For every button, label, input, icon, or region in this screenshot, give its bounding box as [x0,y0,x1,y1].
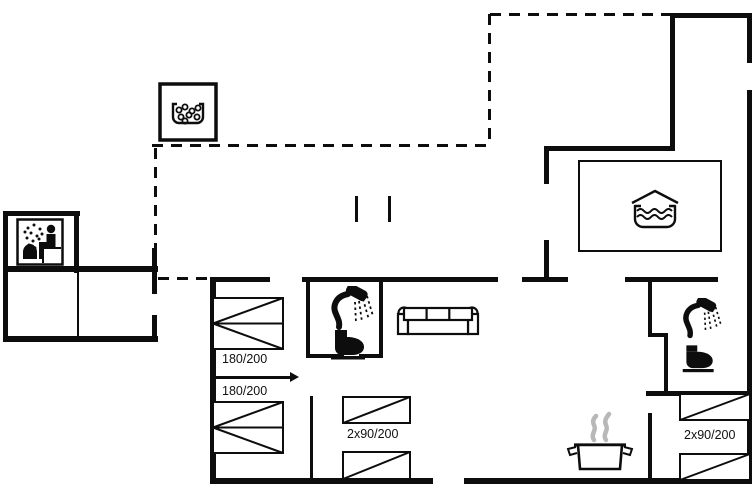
wall-segment [670,13,752,18]
bed-size-label: 2x90/200 [347,427,398,441]
bed-size-label: 2x90/200 [684,428,735,442]
double-bed [212,401,284,454]
bunk-bed-upper [679,393,751,421]
bunk-bed-upper [342,396,411,424]
wall-segment [3,266,158,272]
wall-segment [302,277,498,282]
terrace-boundary-south [152,144,490,147]
terrace-boundary-left [154,148,157,248]
wall-segment [152,315,157,342]
wall-segment [625,277,718,282]
bunk-bed-lower [342,451,411,480]
wall-segment [747,13,752,63]
door-mark [388,196,391,222]
bed-size-label: 180/200 [222,384,267,398]
terrace-boundary-north [490,13,672,16]
shower-icon [680,298,722,340]
double-bed [212,297,284,350]
bathtub-icon [627,186,683,232]
wall-segment [310,396,313,481]
wall-segment [379,281,383,358]
wall-segment [747,90,752,480]
bed-size-label: 180/200 [222,352,267,366]
wall-segment [664,333,668,395]
wall-segment [212,376,292,379]
wall-segment [544,146,675,151]
wall-segment [544,146,549,184]
terrace-boundary-west [488,14,491,146]
wall-segment [210,277,270,282]
wall-segment [3,336,158,342]
toilet-icon [680,340,720,378]
sofa-icon [396,302,480,342]
door-swing-arrow [290,372,299,382]
bunk-bed-lower [679,453,751,481]
wall-segment [77,272,79,336]
wall-segment [74,211,79,273]
wall-segment [648,280,652,337]
wall-segment [3,211,8,273]
shower-icon [328,286,374,332]
wall-segment [648,413,652,480]
whirlpool-icon [158,82,218,142]
floor-plan: 180/200 180/200 2x90/200 2x90/200 [0,0,754,498]
toilet-icon [328,330,372,360]
door-mark [355,196,358,222]
wall-segment [306,281,310,358]
wall-segment [670,13,675,151]
wall-segment [544,240,549,282]
wall-segment [3,211,80,216]
wall-segment [3,266,8,342]
annex-opening-dashed [158,277,210,280]
stove-pot-icon [564,398,636,472]
wall-segment [152,248,157,294]
wall-segment [522,277,568,282]
sauna-icon [16,218,64,266]
